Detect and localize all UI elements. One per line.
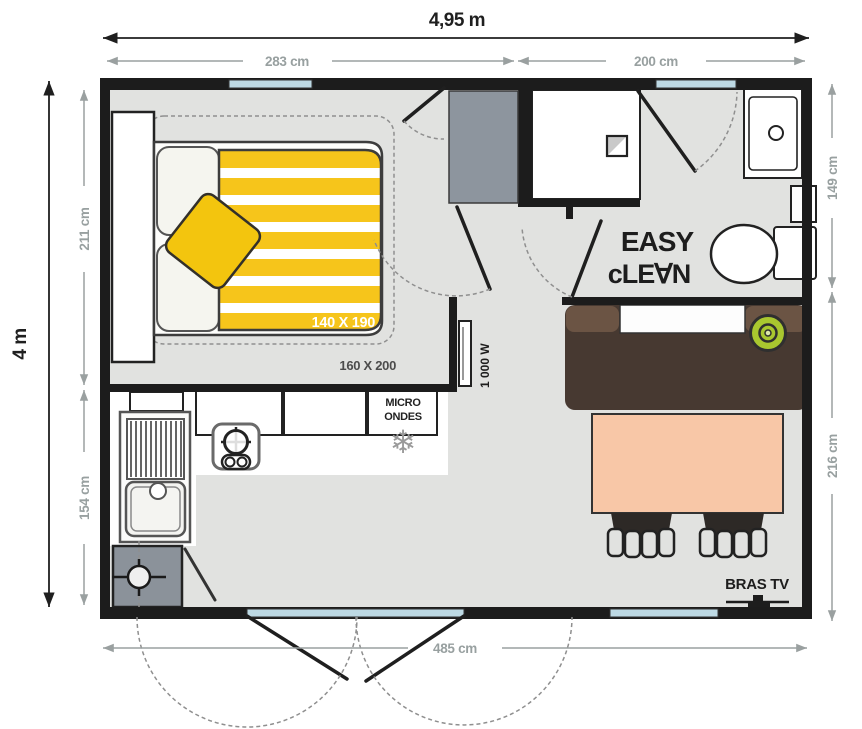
knob-icon: [238, 458, 247, 467]
dining-table: [592, 414, 783, 513]
wall-shower-bottom: [520, 199, 640, 207]
stove: [213, 424, 259, 469]
cabinet-2: [284, 391, 366, 435]
dim-left-upper: 211 cm: [77, 207, 92, 251]
wall-bathroom: [562, 297, 802, 305]
floor-plan-page: 140 X 190 160 X 200 MICRO ONDES ❄: [0, 0, 862, 729]
faucet-icon: [769, 126, 783, 140]
heater-power-label: 1 000 W: [478, 343, 492, 388]
wardrobe: [449, 91, 518, 203]
window-bottom: [610, 609, 718, 617]
wall-bedroom-horizontal: [100, 384, 457, 392]
sofa-white-cushion: [620, 305, 745, 333]
crosshair-icon: [128, 566, 150, 588]
knob-icon: [226, 458, 235, 467]
dim-left-lower: 154 cm: [77, 476, 92, 520]
wall-wardrobe-shower: [518, 90, 532, 207]
fridge-snowflake-icon: ❄: [390, 424, 417, 460]
shower-tray: [532, 90, 640, 199]
dim-bottom-total: 485 cm: [433, 641, 477, 656]
window-top-left: [229, 80, 312, 88]
bed-size-label: 140 X 190: [312, 315, 376, 331]
microwave-label-2: ONDES: [384, 411, 422, 423]
burner-icon: [225, 431, 248, 454]
wall-bedroom-vertical: [449, 297, 457, 392]
dim-right-lower: 216 cm: [825, 434, 840, 478]
dim-overall-width: 4,95 m: [429, 10, 485, 31]
chair: [700, 513, 766, 557]
window-top-right: [656, 80, 736, 88]
entry-door-arc-right: [356, 617, 572, 725]
wall-stub: [566, 207, 573, 219]
tv-bracket-label: BRAS TV: [725, 576, 789, 593]
sofa: [565, 305, 808, 410]
sink-unit: [120, 412, 190, 542]
dim-overall-height: 4 m: [10, 328, 31, 359]
dim-right-upper: 149 cm: [825, 156, 840, 200]
dim-top-left: 283 cm: [265, 54, 309, 69]
entry-door-arc-left: [137, 617, 357, 727]
sofa-armrest-left: [566, 306, 619, 332]
toilet: [711, 225, 816, 283]
floor-plan-drawing: 140 X 190 160 X 200 MICRO ONDES ❄: [0, 0, 862, 729]
logo-line-1: EASY: [621, 226, 695, 257]
chair: [608, 513, 674, 557]
vanity-sink: [744, 89, 802, 178]
dim-top-right: 200 cm: [634, 54, 678, 69]
microwave-label-1: MICRO: [385, 397, 421, 409]
toilet-bowl: [711, 225, 777, 283]
sliding-entry-door: [247, 609, 464, 617]
rug-size-label: 160 X 200: [339, 358, 396, 373]
logo-line-2: cLE∀N: [608, 259, 691, 289]
drain-icon: [150, 483, 166, 499]
water-heater: [112, 541, 182, 616]
bedroom: 140 X 190 160 X 200: [112, 112, 396, 373]
headboard-wardrobe: [112, 112, 154, 362]
cabinet-small: [130, 392, 183, 411]
